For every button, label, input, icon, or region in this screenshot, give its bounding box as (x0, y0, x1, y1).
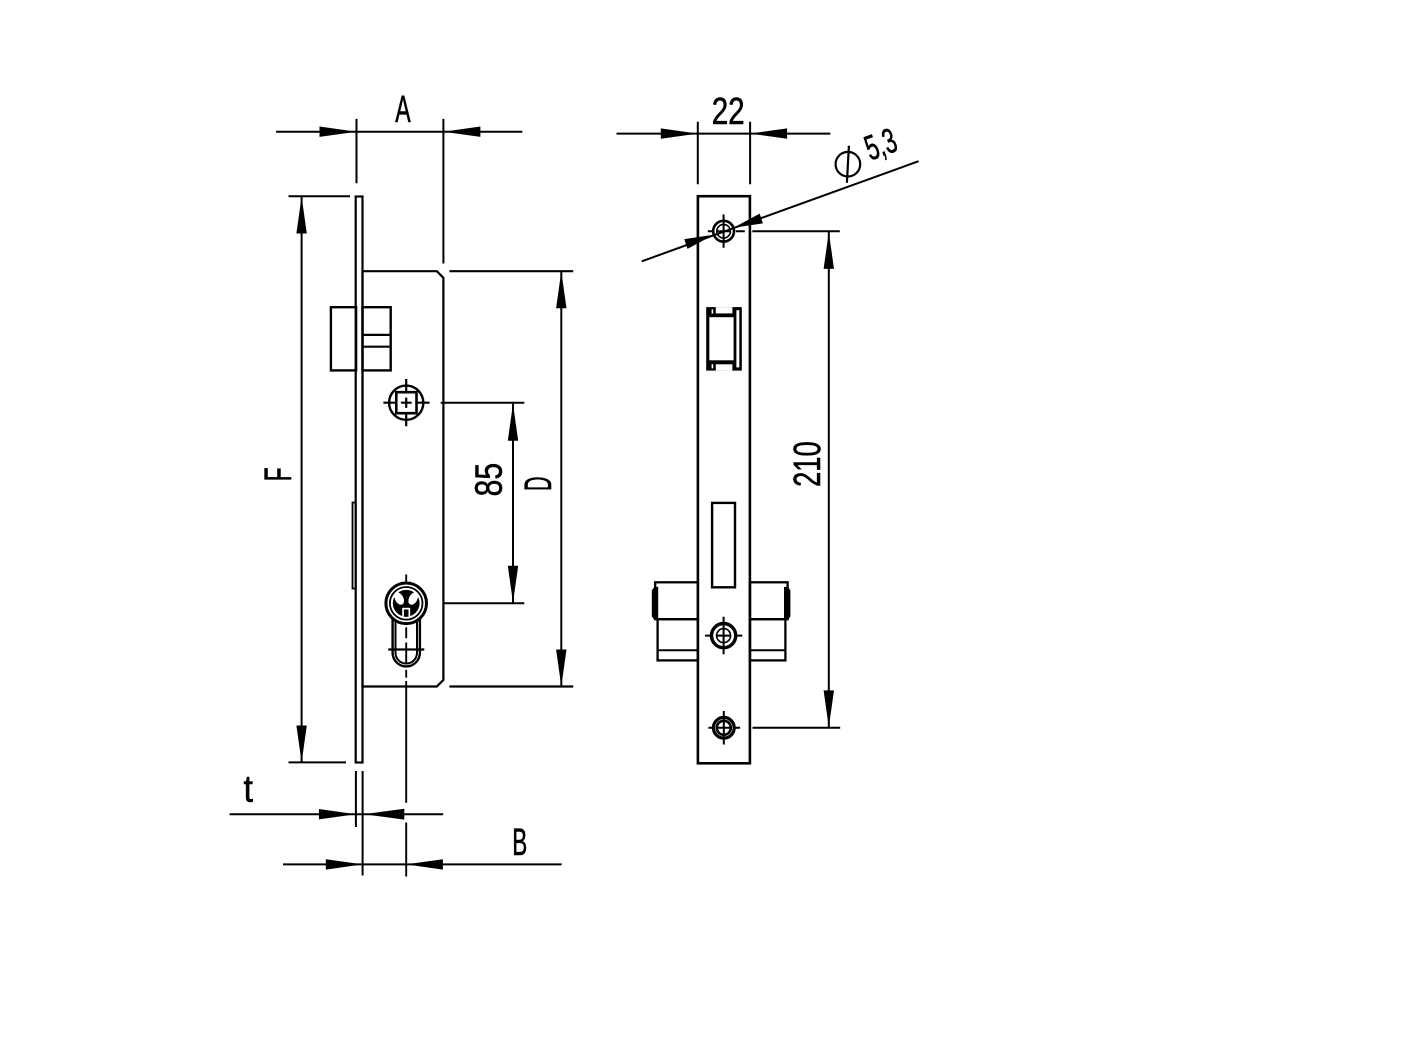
svg-text:F: F (258, 467, 300, 481)
svg-text:5,3: 5,3 (859, 121, 902, 168)
svg-text:D: D (518, 477, 560, 492)
svg-text:B: B (512, 822, 527, 864)
svg-text:A: A (395, 89, 411, 131)
svg-text:22: 22 (712, 91, 745, 133)
svg-text:85: 85 (469, 463, 511, 497)
svg-text:t: t (244, 769, 254, 811)
svg-text:210: 210 (787, 441, 829, 487)
